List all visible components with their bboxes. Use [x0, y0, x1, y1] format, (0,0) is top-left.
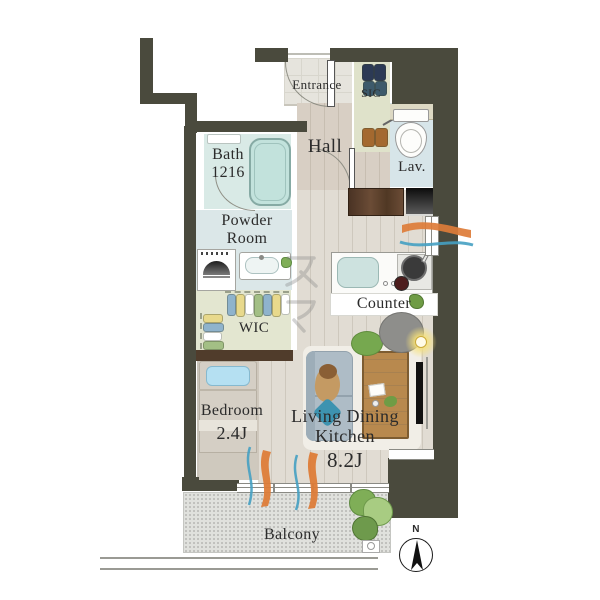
kitchen-sink — [337, 257, 379, 288]
ldk-size: 8.2J — [285, 449, 405, 473]
washing-machine-dots — [201, 252, 231, 255]
ldk-label: Living Dining Kitchen 8.2J — [285, 406, 405, 473]
window-mullion-2 — [312, 483, 314, 493]
bed-pillow — [206, 366, 250, 386]
entrance-lintel-line — [288, 53, 330, 55]
hall-floor-2 — [352, 152, 390, 190]
bathtub-inner-line — [254, 143, 286, 201]
railing-line-2 — [100, 568, 378, 570]
balcony-label: Balcony — [250, 526, 334, 544]
powder-line2: Room — [203, 230, 291, 248]
vent-window-line — [431, 216, 432, 256]
kitchen-cabinet — [348, 188, 404, 216]
floor-plan: Entrance SIC Hall Lav. Bath 1216 Powder … — [0, 0, 600, 600]
ceiling-light — [415, 336, 427, 348]
wic-rod-top — [225, 291, 289, 293]
tv-board-line — [426, 357, 428, 429]
wic-rod-left — [200, 313, 202, 349]
wall-top-a — [255, 48, 288, 62]
ldk-line2: Kitchen — [285, 426, 405, 446]
window-mullion-1 — [273, 483, 275, 493]
bed-blanket-line — [199, 389, 257, 391]
vanity-faucet — [259, 255, 264, 260]
bed-headboard-shelf — [196, 350, 293, 361]
lav-label: Lav. — [392, 159, 432, 176]
railing-line-1 — [100, 557, 378, 559]
balcony-drain-circle — [367, 542, 375, 550]
powder-line1: Powder — [203, 212, 291, 230]
powder-room-label: Powder Room — [203, 212, 291, 248]
bath-size: 1216 — [204, 164, 252, 182]
sic-label: SIC — [353, 87, 389, 100]
bedroom-size: 2.4J — [194, 423, 270, 443]
wall-right — [433, 112, 458, 460]
pot — [394, 276, 409, 291]
counter-label: Counter — [334, 295, 434, 313]
ldk-line1: Living Dining — [285, 406, 405, 426]
washer-base-line — [203, 276, 230, 278]
bath-name: Bath — [204, 146, 252, 164]
window-mullion-3 — [350, 483, 352, 493]
toilet-seat-inner — [400, 129, 422, 153]
entrance-label: Entrance — [286, 78, 348, 93]
compass-n-label: N — [408, 524, 424, 535]
vanity-plant — [281, 257, 292, 268]
refrigerator — [406, 188, 433, 216]
wall-top-right-block — [392, 48, 458, 112]
bed-foot-band — [199, 452, 257, 480]
bath-shelf — [207, 134, 241, 144]
hall-label: Hall — [300, 136, 350, 157]
wic-label: WIC — [232, 320, 276, 337]
bath-label: Bath 1216 — [204, 146, 252, 182]
bedroom-label: Bedroom 2.4J — [194, 402, 270, 443]
person-hair — [319, 364, 337, 379]
table-papers — [368, 383, 386, 397]
toilet-tank — [393, 109, 429, 122]
stove-knob-1 — [383, 281, 388, 286]
wall-bath-top — [185, 121, 307, 132]
bedroom-name: Bedroom — [194, 402, 270, 420]
tv — [416, 362, 423, 424]
balcony-plant-3 — [352, 516, 378, 541]
